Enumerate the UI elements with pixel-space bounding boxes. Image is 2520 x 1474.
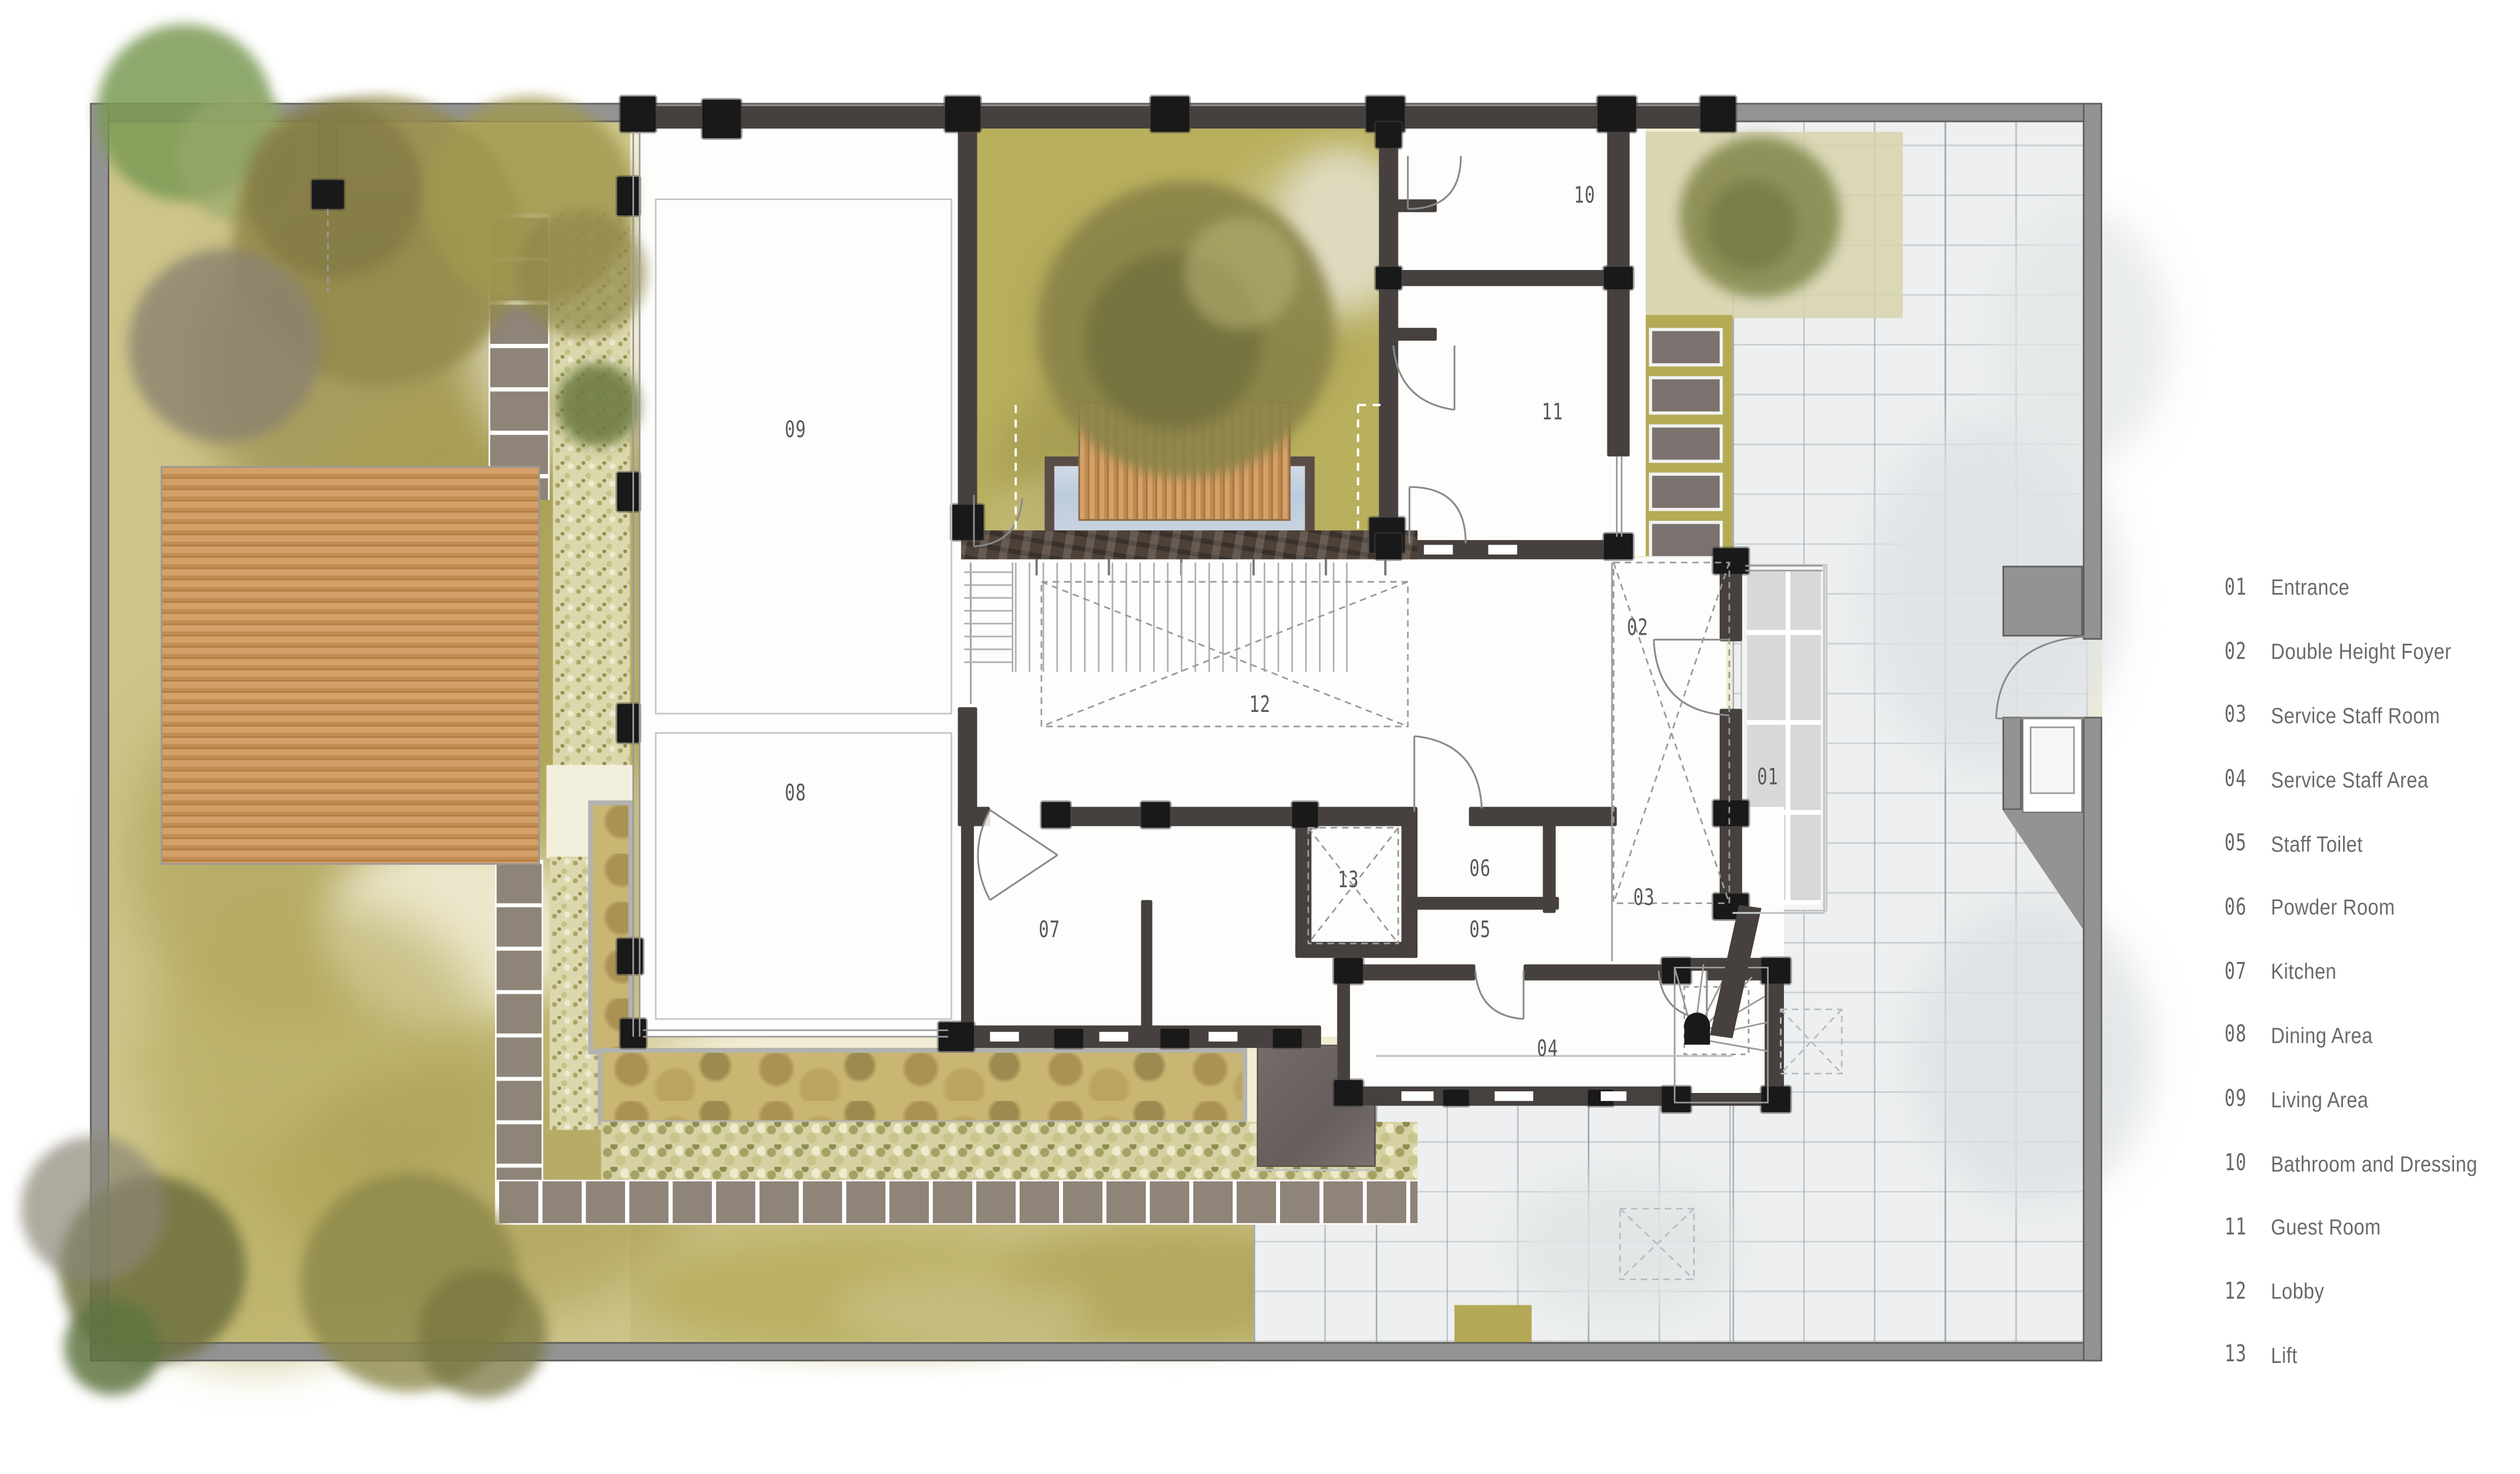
room-label-01: 01 — [1757, 765, 1778, 791]
legend-item-number: 08 — [2216, 1023, 2247, 1049]
legend-item-13: 13Lift — [2205, 1323, 2505, 1387]
legend-item-12: 12Lobby — [2205, 1260, 2505, 1323]
legend: 01Entrance02Double Height Foyer03Service… — [2205, 556, 2505, 1388]
legend-item-11: 11Guest Room — [2205, 1196, 2505, 1259]
legend-item-number: 04 — [2216, 767, 2247, 793]
legend-item-08: 08Dining Area — [2205, 1004, 2505, 1068]
room-label-07: 07 — [1039, 918, 1060, 944]
room-label-05: 05 — [1469, 918, 1491, 944]
legend-item-03: 03Service Staff Room — [2205, 684, 2505, 748]
legend-item-number: 13 — [2216, 1343, 2247, 1369]
legend-item-10: 10Bathroom and Dressing — [2205, 1132, 2505, 1196]
legend-item-label: Powder Room — [2271, 896, 2395, 920]
legend-item-label: Bathroom and Dressing — [2271, 1152, 2477, 1176]
room-label-02: 02 — [1627, 616, 1648, 641]
legend-item-label: Dining Area — [2271, 1024, 2373, 1048]
plan-linework — [0, 0, 2520, 1474]
room-label-10: 10 — [1574, 183, 1595, 209]
room-label-11: 11 — [1542, 400, 1563, 426]
legend-item-label: Lift — [2271, 1344, 2297, 1368]
legend-item-number: 05 — [2216, 831, 2247, 857]
floor-plan-page: 01020304050607080910111213 01Entrance02D… — [0, 0, 2520, 1474]
legend-item-04: 04Service Staff Area — [2205, 748, 2505, 812]
legend-item-05: 05Staff Toilet — [2205, 812, 2505, 875]
room-label-08: 08 — [785, 781, 806, 807]
legend-item-number: 10 — [2216, 1151, 2247, 1177]
door-arc — [1408, 156, 1461, 209]
legend-item-label: Service Staff Room — [2271, 704, 2440, 728]
legend-item-label: Kitchen — [2271, 960, 2337, 984]
room-label-12: 12 — [1249, 693, 1270, 719]
room-label-04: 04 — [1537, 1037, 1558, 1063]
legend-item-02: 02Double Height Foyer — [2205, 620, 2505, 684]
legend-item-label: Entrance — [2271, 576, 2350, 600]
legend-item-label: Guest Room — [2271, 1216, 2381, 1240]
legend-item-number: 06 — [2216, 895, 2247, 921]
legend-item-number: 07 — [2216, 959, 2247, 985]
legend-item-label: Double Height Foyer — [2271, 640, 2451, 664]
room-label-13: 13 — [1337, 868, 1359, 894]
legend-item-number: 09 — [2216, 1087, 2247, 1113]
legend-item-label: Staff Toilet — [2271, 832, 2363, 856]
room-label-06: 06 — [1469, 857, 1491, 883]
legend-item-number: 12 — [2216, 1279, 2247, 1305]
legend-item-01: 01Entrance — [2205, 556, 2505, 620]
legend-item-number: 03 — [2216, 703, 2247, 729]
legend-item-06: 06Powder Room — [2205, 876, 2505, 940]
legend-item-label: Service Staff Area — [2271, 768, 2429, 792]
legend-item-09: 09Living Area — [2205, 1068, 2505, 1131]
legend-item-label: Lobby — [2271, 1280, 2324, 1304]
legend-item-number: 11 — [2216, 1215, 2247, 1241]
legend-item-number: 01 — [2216, 575, 2247, 601]
room-label-09: 09 — [785, 418, 806, 444]
legend-item-label: Living Area — [2271, 1088, 2368, 1112]
legend-item-07: 07Kitchen — [2205, 940, 2505, 1003]
room-label-03: 03 — [1633, 886, 1655, 911]
legend-item-number: 02 — [2216, 639, 2247, 665]
